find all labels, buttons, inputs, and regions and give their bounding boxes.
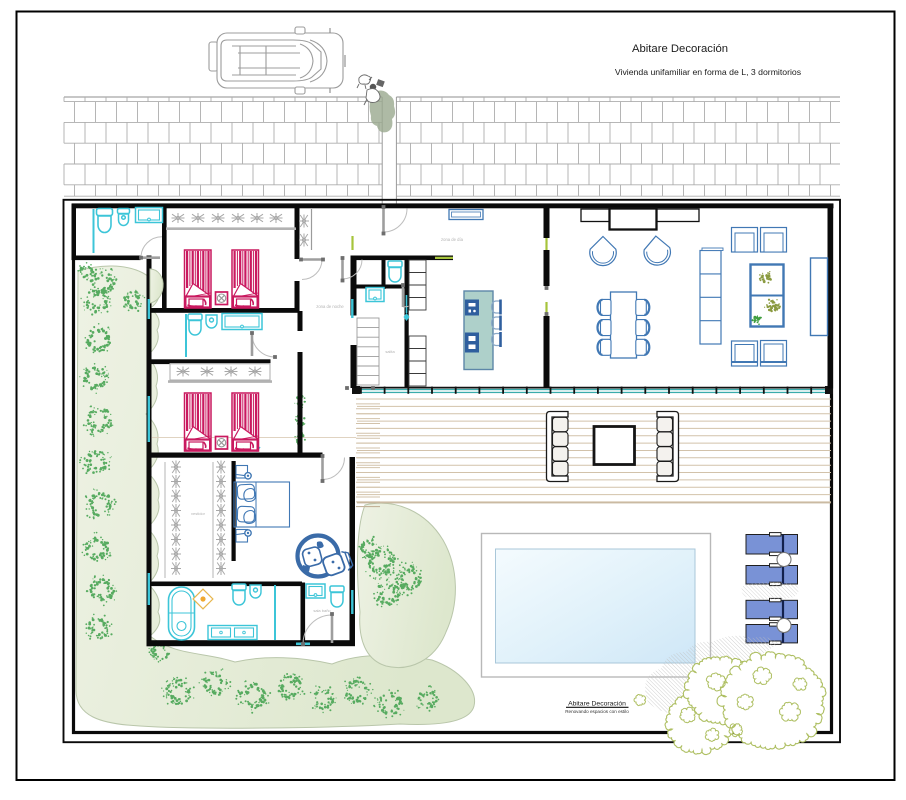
svg-text:vestidor: vestidor <box>191 511 206 516</box>
svg-text:Abitare Decoración: Abitare Decoración <box>568 701 626 708</box>
svg-text:salita: salita <box>385 349 395 354</box>
svg-text:sala baño: sala baño <box>313 608 331 613</box>
svg-text:zona de día: zona de día <box>441 237 464 242</box>
svg-text:Abitare Decoración: Abitare Decoración <box>632 43 728 55</box>
svg-text:Vivienda unifamiliar en forma: Vivienda unifamiliar en forma de L, 3 do… <box>615 67 802 77</box>
svg-text:zona de noche: zona de noche <box>316 304 344 309</box>
svg-text:Renovando espacios con estilo: Renovando espacios con estilo <box>565 709 629 714</box>
